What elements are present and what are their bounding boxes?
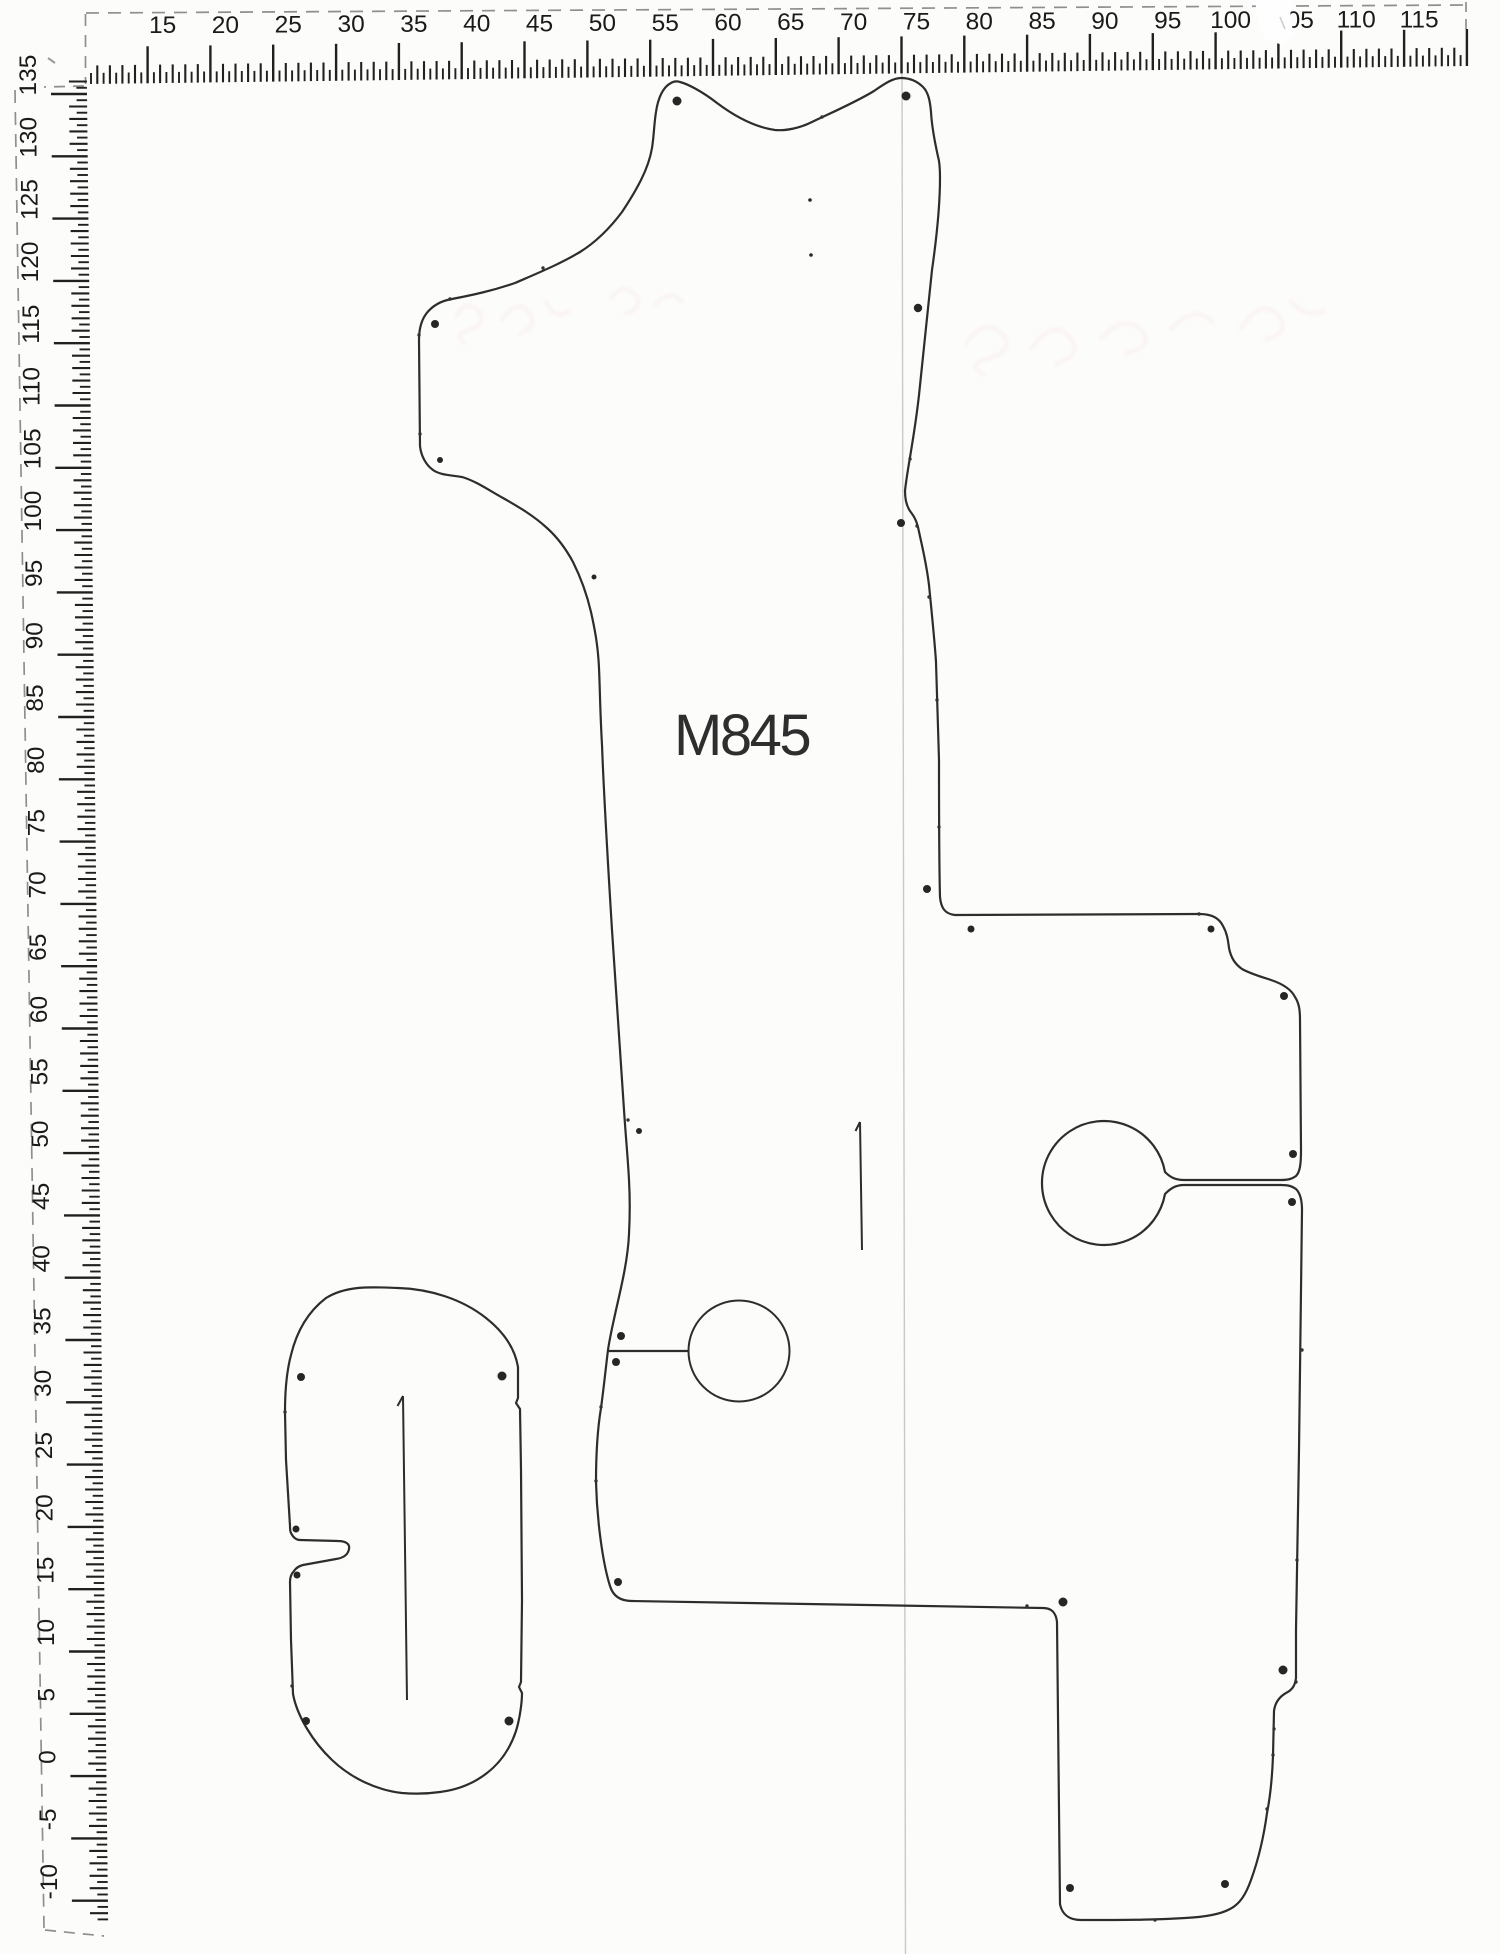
svg-text:55: 55 bbox=[27, 1058, 54, 1085]
svg-text:100: 100 bbox=[20, 491, 47, 532]
svg-text:35: 35 bbox=[29, 1307, 56, 1334]
svg-text:75: 75 bbox=[24, 809, 51, 836]
svg-text:30: 30 bbox=[30, 1370, 57, 1397]
svg-text:125: 125 bbox=[16, 179, 43, 220]
svg-text:90: 90 bbox=[1091, 8, 1118, 35]
svg-text:65: 65 bbox=[777, 9, 804, 36]
svg-text:120: 120 bbox=[17, 241, 44, 282]
svg-text:115: 115 bbox=[1400, 6, 1439, 33]
svg-text:90: 90 bbox=[22, 622, 49, 649]
svg-text:115: 115 bbox=[18, 305, 45, 344]
svg-text:85: 85 bbox=[1028, 8, 1055, 35]
svg-text:40: 40 bbox=[29, 1245, 56, 1272]
svg-text:95: 95 bbox=[21, 560, 48, 587]
svg-text:55: 55 bbox=[652, 10, 679, 37]
svg-text:35: 35 bbox=[400, 11, 427, 38]
svg-text:65: 65 bbox=[25, 934, 52, 961]
svg-text:80: 80 bbox=[23, 747, 50, 774]
svg-text:25: 25 bbox=[31, 1432, 58, 1459]
svg-text:80: 80 bbox=[966, 8, 993, 35]
svg-text:-10: -10 bbox=[36, 1864, 63, 1899]
svg-text:130: 130 bbox=[16, 117, 43, 158]
svg-text:85: 85 bbox=[22, 684, 49, 711]
svg-text:70: 70 bbox=[840, 9, 867, 36]
svg-text:45: 45 bbox=[28, 1183, 55, 1210]
svg-text:10: 10 bbox=[33, 1619, 60, 1646]
svg-text:100: 100 bbox=[1210, 7, 1251, 34]
svg-text:95: 95 bbox=[1154, 8, 1181, 35]
svg-text:25: 25 bbox=[275, 12, 302, 39]
svg-text:15: 15 bbox=[32, 1557, 59, 1584]
svg-text:75: 75 bbox=[903, 9, 930, 36]
svg-text:50: 50 bbox=[589, 10, 616, 37]
svg-text:50: 50 bbox=[27, 1120, 54, 1147]
svg-text:110: 110 bbox=[1337, 7, 1376, 34]
svg-text:40: 40 bbox=[463, 11, 490, 38]
svg-text:110: 110 bbox=[19, 367, 46, 406]
svg-text:15: 15 bbox=[149, 12, 176, 39]
svg-text:-5: -5 bbox=[35, 1809, 62, 1831]
svg-text:135: 135 bbox=[15, 55, 42, 96]
svg-text:5: 5 bbox=[34, 1688, 61, 1702]
svg-text:105: 105 bbox=[19, 428, 46, 469]
svg-text:60: 60 bbox=[26, 996, 53, 1023]
svg-text:60: 60 bbox=[714, 10, 741, 37]
svg-text:20: 20 bbox=[212, 12, 239, 39]
svg-text:70: 70 bbox=[24, 871, 51, 898]
svg-text:30: 30 bbox=[337, 11, 364, 38]
svg-text:M845: M845 bbox=[674, 703, 809, 768]
svg-text:20: 20 bbox=[32, 1494, 59, 1521]
svg-text:45: 45 bbox=[526, 10, 553, 37]
svg-text:0: 0 bbox=[34, 1750, 61, 1764]
